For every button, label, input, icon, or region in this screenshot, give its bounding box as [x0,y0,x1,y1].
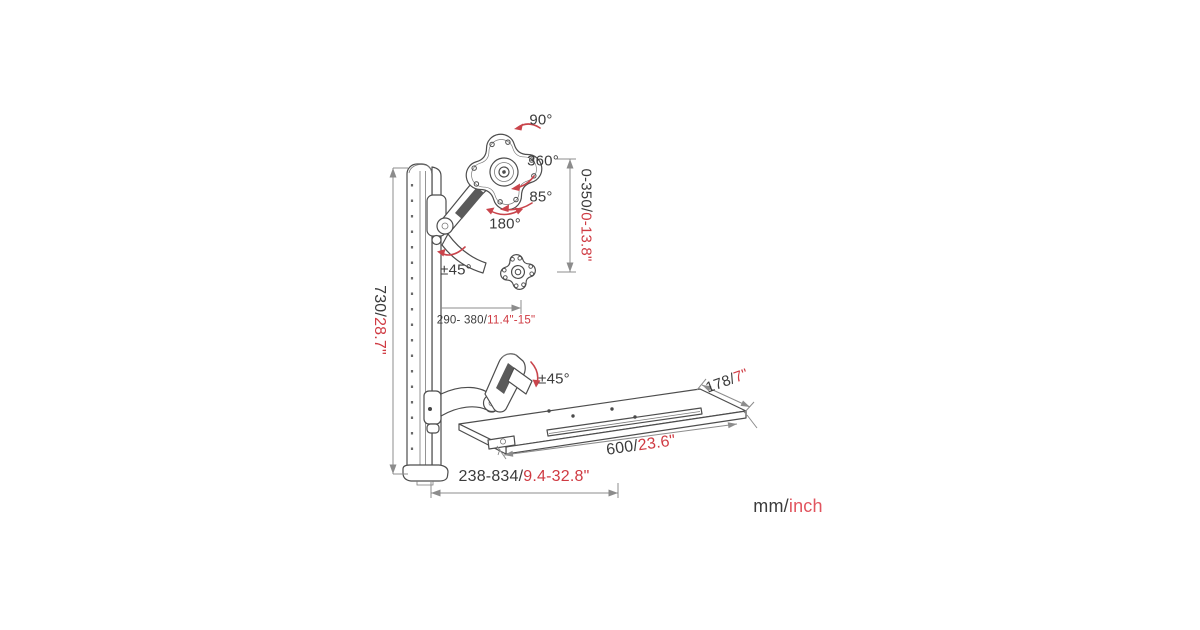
angle-upper-45-label: ±45° [440,263,472,278]
keyboard-arm-bracket [424,391,441,424]
angle-180-label: 180° [489,217,521,232]
dim-vertical-range-line [557,159,576,272]
dim-arm-reach-label: 290- 380/11.4"-15" [437,315,536,327]
vesa-plate-lower [498,252,537,291]
diagram-canvas: 90° 360° 85° 180° ±45° ±45° 730/28.7" 0-… [0,0,1200,630]
dim-track-height-line [390,168,409,474]
line-art [0,0,1200,630]
angle-90-label: 90° [529,113,552,128]
units-legend: mm/inch [753,497,822,515]
angle-lower-45-label: ±45° [538,372,570,387]
angle-360-label: 360° [527,154,559,169]
dim-horizontal-reach-label: 238-834/9.4-32.8" [459,469,590,485]
angle-85-label: 85° [529,190,552,205]
dim-arm-reach-line [441,300,521,314]
dim-vertical-range-label: 0-350/0-13.8" [579,169,594,262]
dim-track-height-label: 730/28.7" [371,285,387,355]
